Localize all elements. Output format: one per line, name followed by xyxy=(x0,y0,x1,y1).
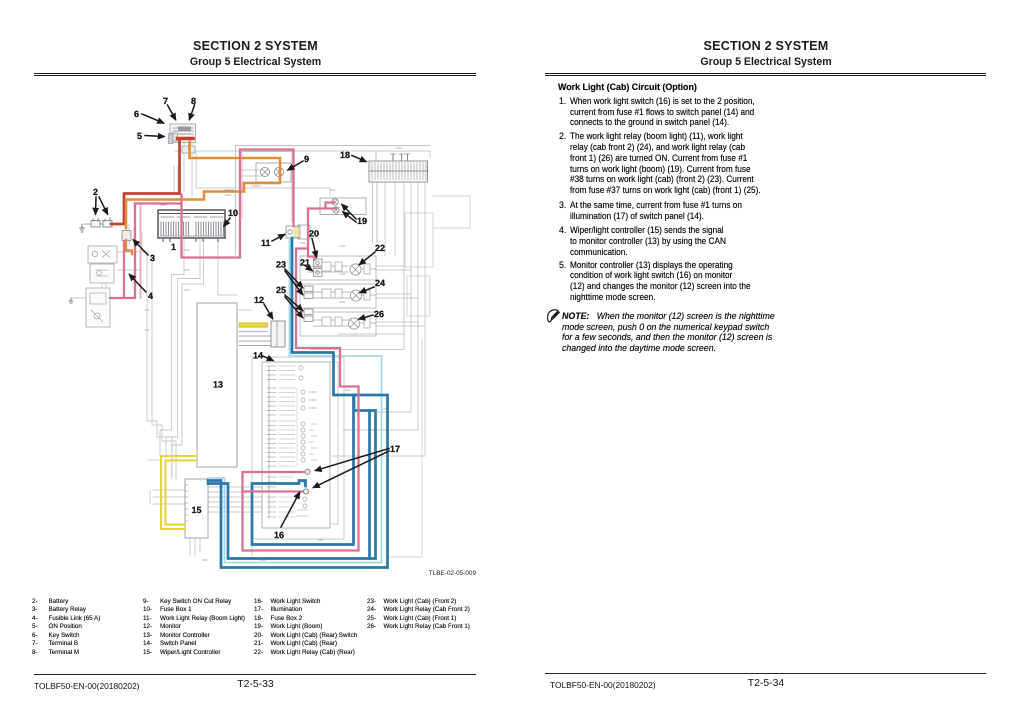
svg-text:14: 14 xyxy=(253,351,263,361)
svg-text:1: 1 xyxy=(171,242,176,252)
svg-text:20: 20 xyxy=(309,229,319,239)
svg-text:3: 3 xyxy=(150,253,155,263)
svg-text:9: 9 xyxy=(304,154,309,164)
svg-text:23: 23 xyxy=(276,260,286,270)
svg-text:15: 15 xyxy=(191,505,201,515)
svg-text:4: 4 xyxy=(148,291,153,301)
svg-text:25: 25 xyxy=(276,285,286,295)
svg-text:10: 10 xyxy=(228,208,238,218)
svg-text:2: 2 xyxy=(93,187,98,197)
svg-text:5: 5 xyxy=(137,131,142,141)
svg-text:6: 6 xyxy=(134,109,139,119)
svg-text:24: 24 xyxy=(375,278,385,288)
svg-text:12: 12 xyxy=(254,295,264,305)
svg-text:19: 19 xyxy=(357,216,367,226)
svg-text:22: 22 xyxy=(375,243,385,253)
svg-text:13: 13 xyxy=(213,380,223,390)
svg-text:17: 17 xyxy=(390,444,400,454)
svg-text:16: 16 xyxy=(274,530,284,540)
svg-text:11: 11 xyxy=(261,238,271,248)
svg-text:26: 26 xyxy=(374,309,384,319)
svg-text:18: 18 xyxy=(340,150,350,160)
